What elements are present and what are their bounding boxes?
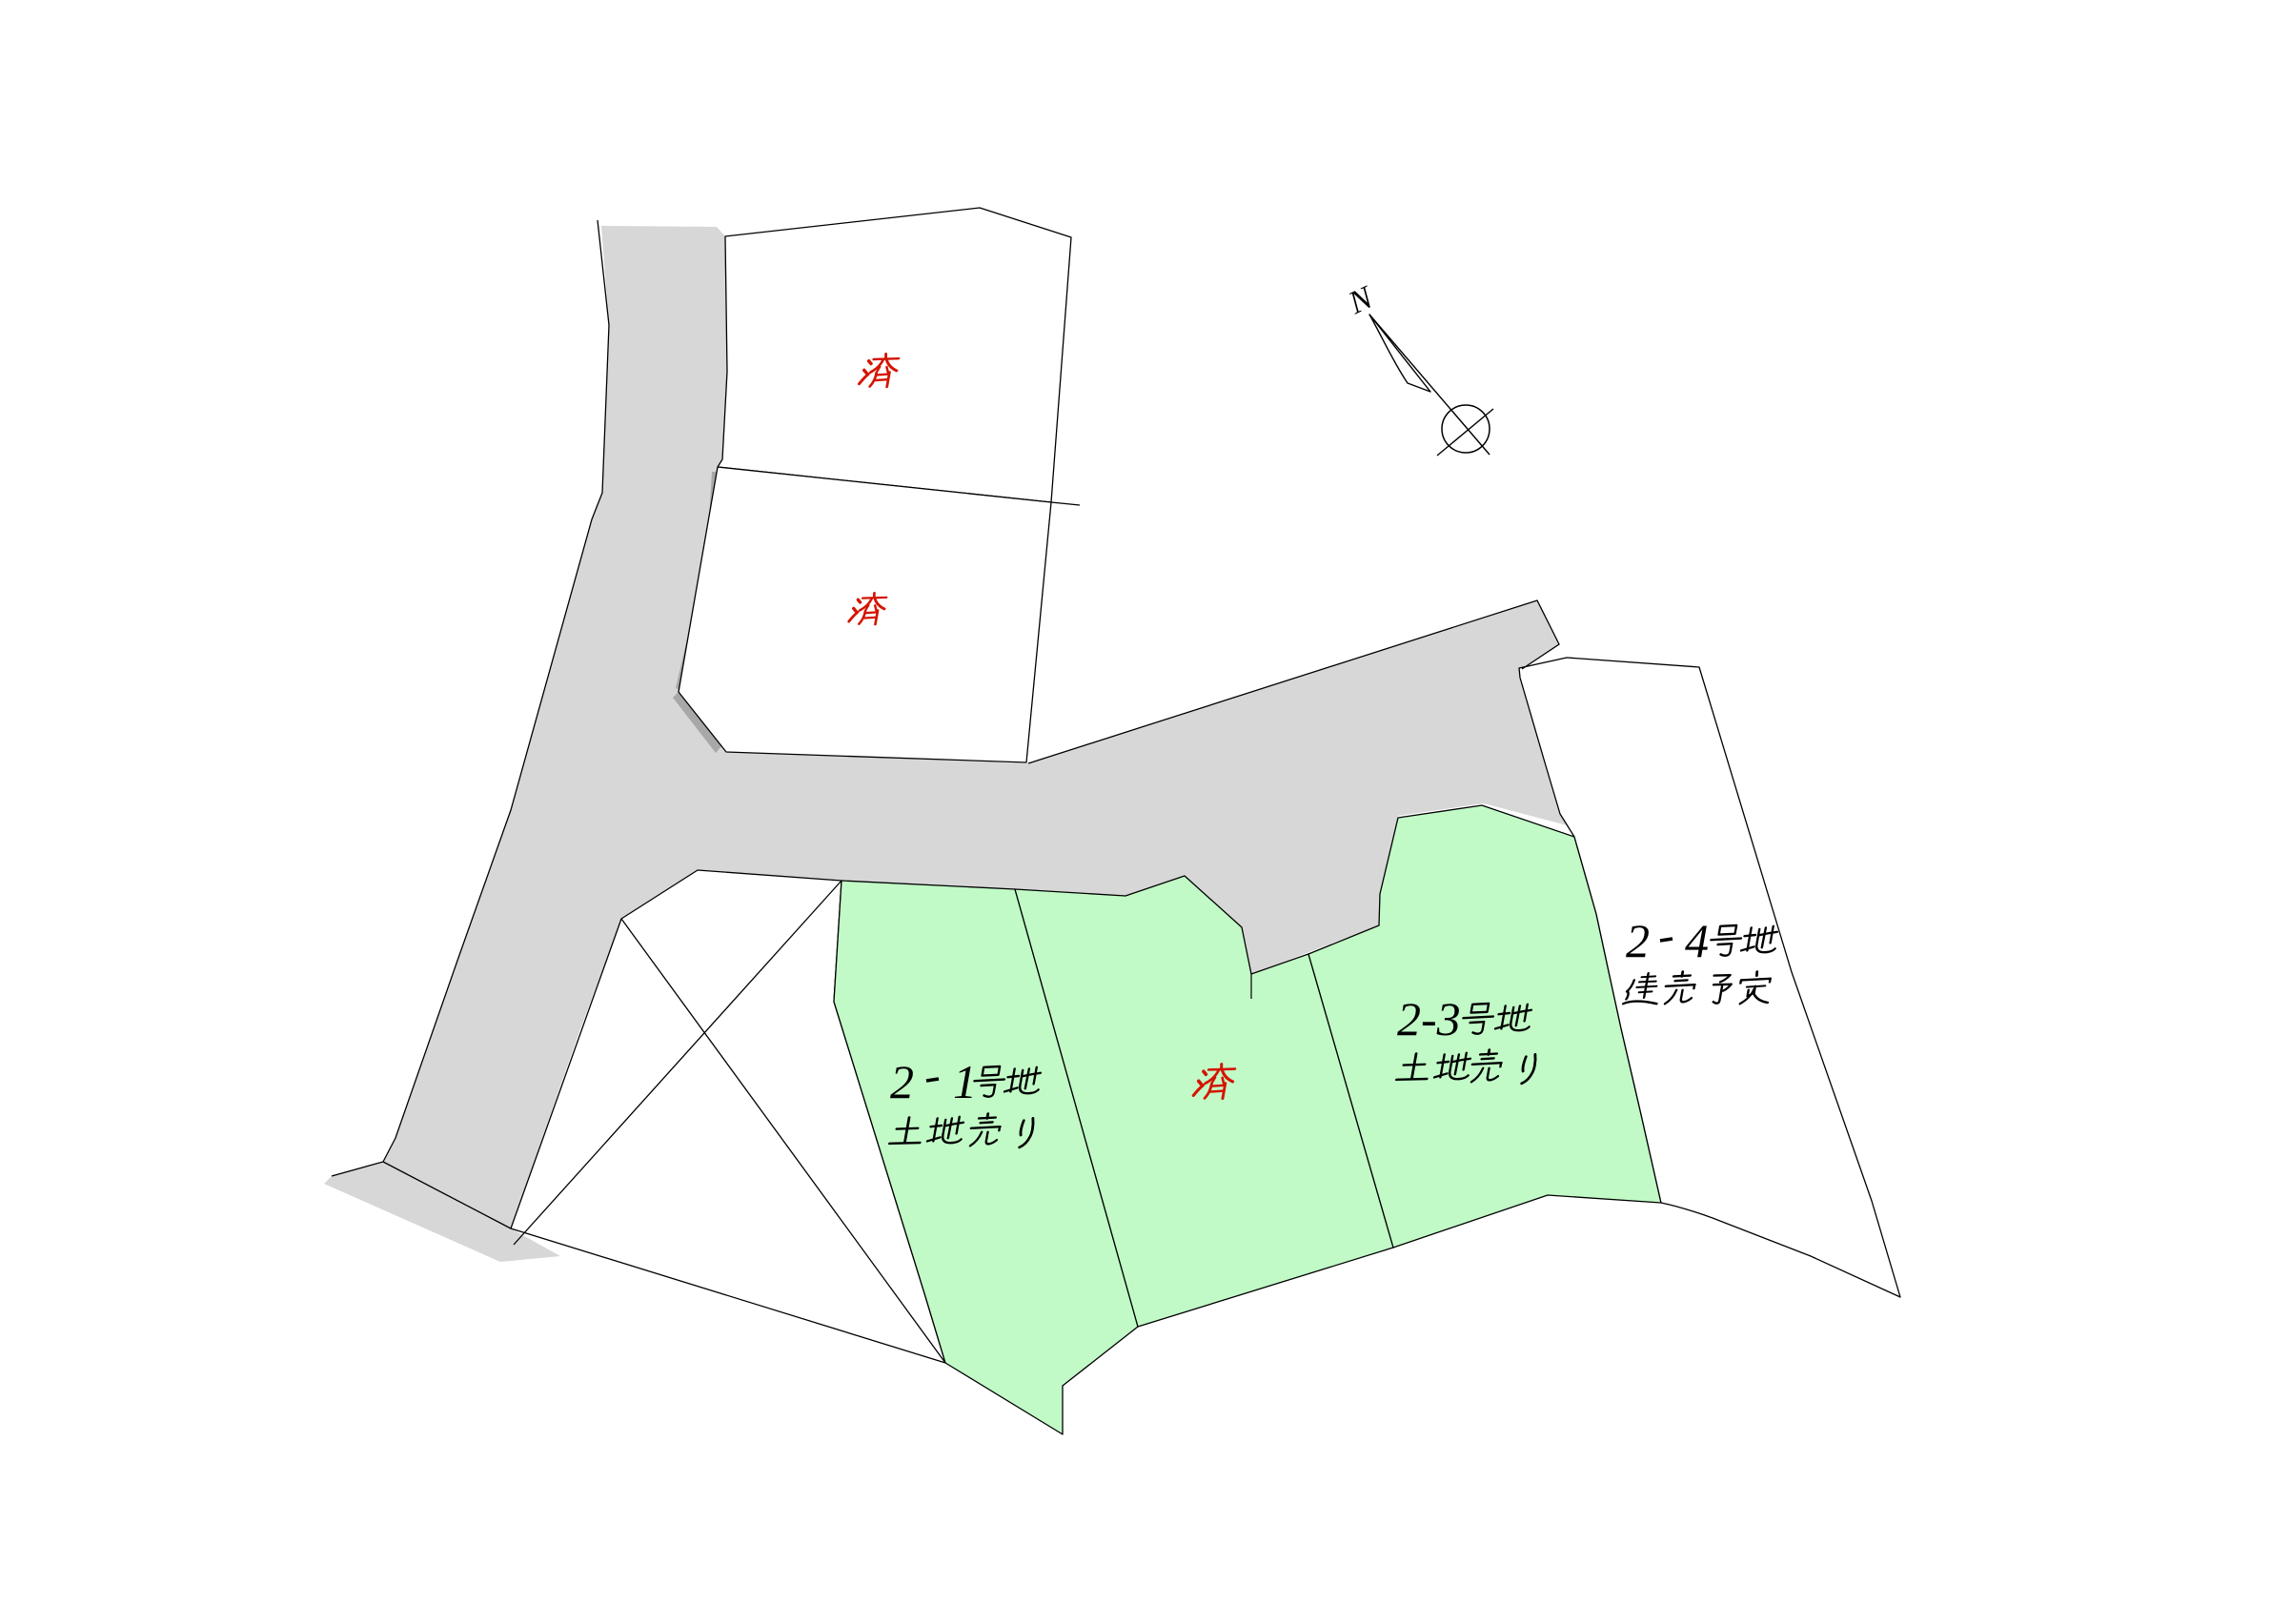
svg-text:4: 4 — [1685, 914, 1709, 967]
svg-text:2: 2 — [890, 1055, 914, 1108]
svg-text:1: 1 — [953, 1055, 977, 1108]
svg-text:2: 2 — [1626, 914, 1650, 967]
svg-text:2-3: 2-3 — [1397, 992, 1461, 1045]
